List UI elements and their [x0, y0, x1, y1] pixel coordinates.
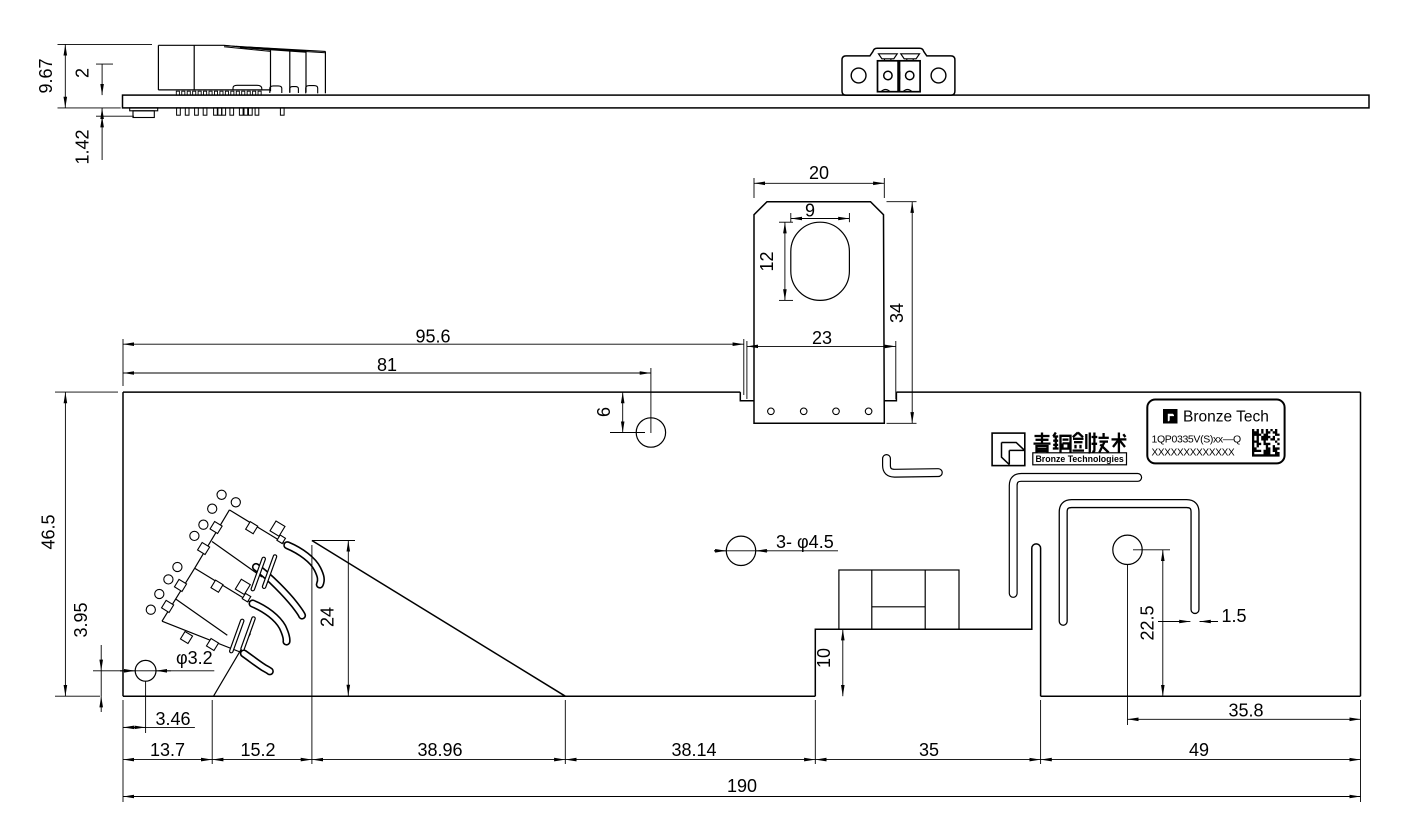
svg-text:22.5: 22.5 — [1138, 605, 1158, 640]
svg-text:81: 81 — [377, 355, 397, 375]
svg-text:12: 12 — [757, 251, 777, 271]
svg-text:38.14: 38.14 — [671, 740, 716, 760]
svg-text:6: 6 — [594, 407, 614, 417]
svg-text:Bronze Technologies: Bronze Technologies — [1035, 454, 1123, 464]
svg-text:10: 10 — [814, 648, 834, 668]
svg-text:34: 34 — [887, 303, 907, 323]
svg-text:3- φ4.5: 3- φ4.5 — [776, 532, 834, 552]
svg-text:46.5: 46.5 — [39, 514, 59, 549]
svg-text:9.67: 9.67 — [36, 58, 56, 93]
svg-text:190: 190 — [727, 776, 757, 796]
svg-text:9: 9 — [805, 200, 815, 220]
svg-text:49: 49 — [1189, 740, 1209, 760]
svg-text:2: 2 — [73, 68, 93, 78]
svg-text:1QP0335V(S)xx—Q: 1QP0335V(S)xx—Q — [1152, 434, 1241, 446]
svg-text:35.8: 35.8 — [1228, 701, 1263, 721]
svg-text:3.95: 3.95 — [71, 602, 91, 637]
svg-text:1.5: 1.5 — [1221, 606, 1246, 626]
svg-text:95.6: 95.6 — [415, 326, 450, 346]
svg-text:20: 20 — [809, 163, 829, 183]
svg-text:φ3.2: φ3.2 — [176, 648, 213, 668]
svg-text:23: 23 — [812, 328, 832, 348]
svg-text:38.96: 38.96 — [417, 740, 462, 760]
svg-text:XXXXXXXXXXXXX: XXXXXXXXXXXXX — [1152, 447, 1235, 458]
svg-text:3.46: 3.46 — [155, 709, 190, 729]
svg-text:13.7: 13.7 — [150, 740, 185, 760]
svg-text:24: 24 — [318, 607, 338, 627]
svg-text:35: 35 — [919, 740, 939, 760]
svg-text:15.2: 15.2 — [240, 740, 275, 760]
svg-text:Bronze Tech: Bronze Tech — [1183, 409, 1269, 426]
svg-text:1.42: 1.42 — [73, 129, 93, 164]
